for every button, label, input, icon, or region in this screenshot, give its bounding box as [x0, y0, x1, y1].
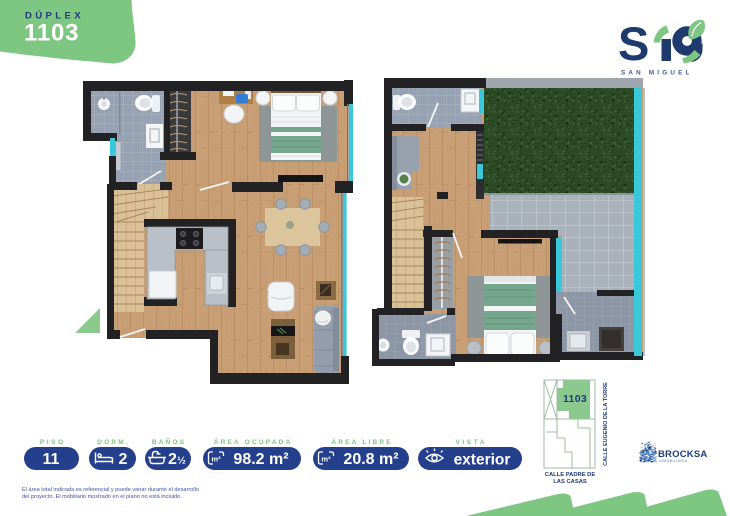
svg-text:½: ½ [177, 455, 186, 467]
svg-text:2: 2 [168, 451, 177, 468]
svg-text:SAN MIGUEL: SAN MIGUEL [621, 70, 693, 77]
svg-text:S: S [618, 17, 649, 70]
svg-text:m²: m² [211, 455, 221, 464]
svg-text:DORM.: DORM. [97, 439, 130, 446]
svg-text:ÁREA LIBRE: ÁREA LIBRE [331, 437, 392, 446]
svg-text:LAS CASAS: LAS CASAS [553, 479, 587, 485]
svg-text:CALLE PADRE DE: CALLE PADRE DE [545, 472, 596, 478]
svg-text:98.2 m²: 98.2 m² [233, 451, 288, 468]
svg-text:1103: 1103 [24, 20, 79, 47]
svg-text:CALLE EUGENIO DE LA TORRE: CALLE EUGENIO DE LA TORRE [603, 382, 609, 466]
svg-text:ÁREA OCUPADA: ÁREA OCUPADA [214, 437, 293, 446]
svg-text:20.8 m²: 20.8 m² [343, 451, 398, 468]
svg-text:INMOBILIARIA: INMOBILIARIA [659, 459, 688, 463]
svg-text:1103: 1103 [563, 393, 587, 405]
svg-text:exterior: exterior [454, 452, 511, 469]
svg-text:11: 11 [43, 451, 60, 468]
svg-text:VISTA: VISTA [455, 439, 487, 446]
svg-text:BAÑOS: BAÑOS [152, 437, 186, 446]
svg-text:del proyecto. El mobiliario mo: del proyecto. El mobiliario mostrado en … [22, 494, 182, 500]
svg-text:m²: m² [321, 455, 331, 464]
svg-text:PISO: PISO [40, 439, 66, 446]
svg-text:El área total indicada es refe: El área total indicada es referencial y … [22, 487, 199, 493]
svg-text:2: 2 [119, 451, 128, 468]
